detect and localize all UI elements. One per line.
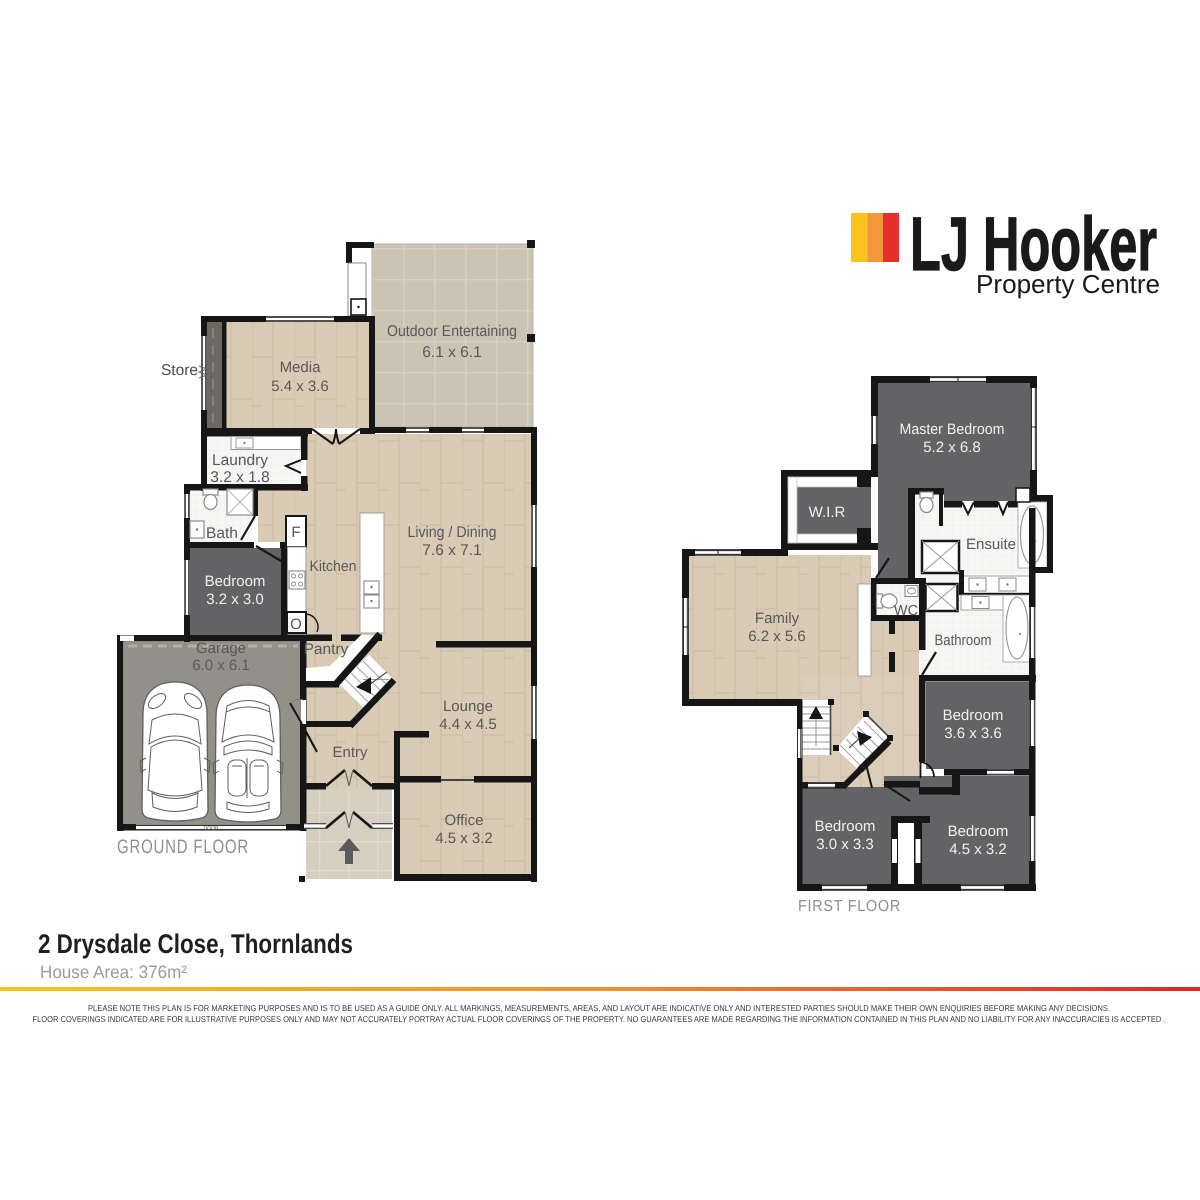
- svg-text:3.2 x 3.0: 3.2 x 3.0: [206, 591, 264, 608]
- svg-text:Pantry: Pantry: [304, 641, 349, 658]
- svg-text:3.0 x 3.3: 3.0 x 3.3: [816, 836, 874, 853]
- svg-text:Lounge: Lounge: [443, 698, 493, 715]
- svg-text:W.I.R: W.I.R: [809, 504, 846, 521]
- svg-text:4.5 x 3.2: 4.5 x 3.2: [949, 841, 1007, 858]
- svg-text:Ensuite: Ensuite: [966, 536, 1016, 553]
- svg-text:Bedroom: Bedroom: [948, 823, 1009, 840]
- svg-text:DOOR: DOOR: [204, 826, 219, 832]
- svg-text:Bath: Bath: [206, 525, 238, 542]
- svg-text:Entry: Entry: [332, 744, 368, 761]
- svg-text:4.5 x 3.2: 4.5 x 3.2: [435, 830, 493, 847]
- svg-text:3.6 x 3.6: 3.6 x 3.6: [944, 725, 1002, 742]
- svg-text:6.0 x 6.1: 6.0 x 6.1: [192, 657, 250, 674]
- svg-text:PLEASE NOTE THIS PLAN IS FOR M: PLEASE NOTE THIS PLAN IS FOR MARKETING P…: [88, 1003, 1110, 1013]
- svg-text:3.2 x 1.8: 3.2 x 1.8: [210, 469, 269, 486]
- svg-text:FLOOR COVERINGS INDICATED ARE: FLOOR COVERINGS INDICATED ARE FOR ILLUST…: [33, 1014, 1166, 1024]
- svg-text:Outdoor Entertaining: Outdoor Entertaining: [387, 323, 517, 340]
- svg-text:Store: Store: [161, 362, 198, 379]
- svg-text:O: O: [290, 616, 302, 633]
- svg-text:Bedroom: Bedroom: [943, 707, 1004, 724]
- svg-text:F: F: [291, 524, 300, 541]
- svg-text:Laundry: Laundry: [212, 452, 268, 469]
- svg-text:Bathroom: Bathroom: [935, 632, 992, 649]
- svg-text:5.2 x 6.8: 5.2 x 6.8: [923, 439, 981, 456]
- svg-text:Bedroom: Bedroom: [815, 818, 876, 835]
- svg-text:Property Centre: Property Centre: [976, 269, 1160, 299]
- svg-text:Family: Family: [755, 610, 800, 627]
- svg-text:WC: WC: [894, 603, 918, 619]
- svg-text:Office: Office: [445, 812, 484, 829]
- svg-text:2 Drysdale Close, Thornlands: 2 Drysdale Close, Thornlands: [38, 929, 353, 959]
- svg-text:7.6 x 7.1: 7.6 x 7.1: [422, 542, 481, 559]
- svg-text:Master Bedroom: Master Bedroom: [900, 421, 1005, 438]
- svg-text:Living / Dining: Living / Dining: [408, 524, 497, 541]
- svg-text:5.4 x 3.6: 5.4 x 3.6: [271, 378, 329, 395]
- svg-text:6.1 x 6.1: 6.1 x 6.1: [422, 344, 481, 361]
- svg-text:Media: Media: [280, 359, 322, 376]
- svg-text:GROUND FLOOR: GROUND FLOOR: [117, 836, 249, 858]
- svg-text:House Area: 376m²: House Area: 376m²: [40, 962, 187, 982]
- svg-text:4.4 x 4.5: 4.4 x 4.5: [439, 716, 497, 733]
- svg-text:Bedroom: Bedroom: [205, 573, 266, 590]
- svg-text:Garage: Garage: [196, 640, 246, 657]
- svg-text:Kitchen: Kitchen: [310, 558, 357, 575]
- svg-text:6.2 x 5.6: 6.2 x 5.6: [748, 628, 806, 645]
- svg-text:FIRST FLOOR: FIRST FLOOR: [798, 898, 901, 915]
